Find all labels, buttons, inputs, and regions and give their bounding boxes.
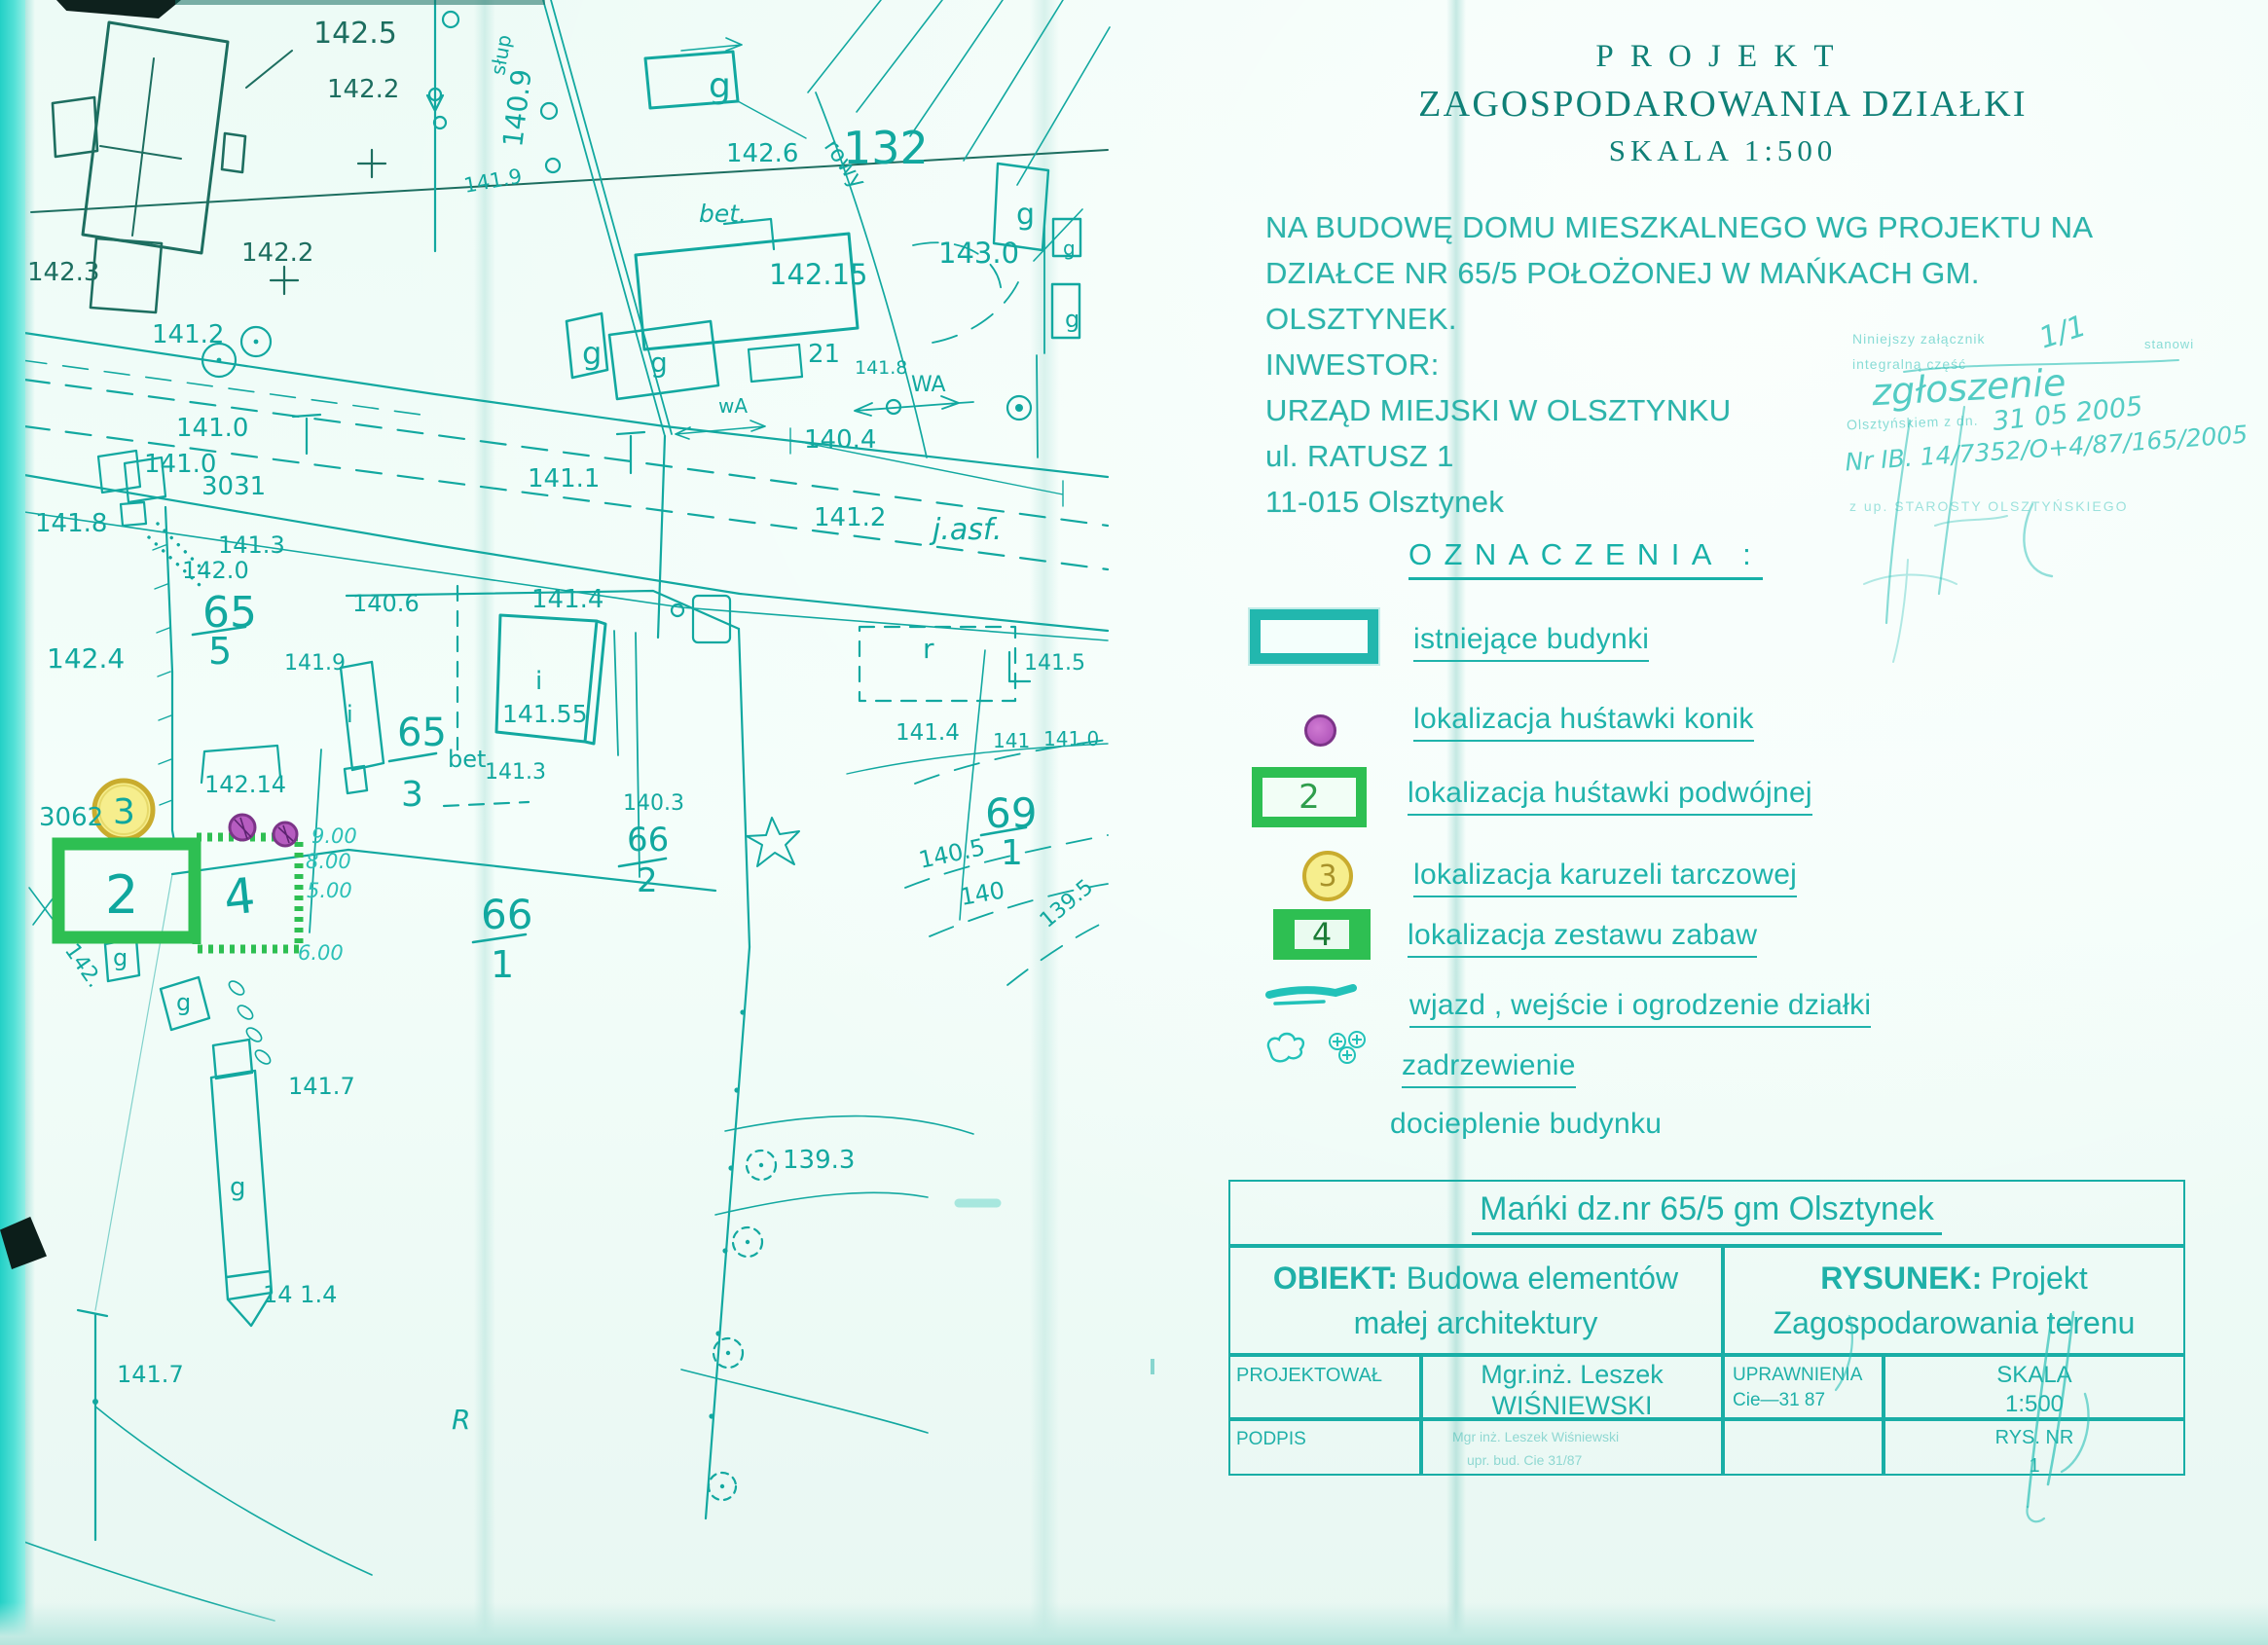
map-label: R — [452, 1404, 470, 1436]
map-label: g — [582, 335, 602, 372]
legend-number-4: 4 — [1295, 920, 1349, 949]
map-label: 6.00 — [298, 941, 344, 965]
legend-item-wjazd-ogrodzenie: wjazd , wejście i ogrodzenie działki — [1409, 989, 1871, 1028]
map-label: 66 — [627, 821, 669, 859]
map-label: 5 — [208, 630, 232, 673]
scanner-edge-strip — [0, 0, 25, 1645]
map-label: 3031 — [201, 472, 266, 501]
legend-item-hustawka-podwojna: lokalizacja huśtawki podwójnej — [1408, 777, 1812, 816]
skala-cell: SKALA 1:500 — [1884, 1355, 2185, 1419]
map-label: 142.15 — [769, 258, 867, 291]
stamp-printed-text: stanowi — [2144, 337, 2194, 351]
map-label: 141.8 — [855, 357, 907, 379]
title-block-location: Mańki dz.nr 65/5 gm Olsztynek — [1228, 1180, 2185, 1246]
map-label: 142.2 — [241, 238, 313, 268]
map-label: 140.6 — [352, 590, 420, 617]
scan-top-edge-line — [175, 0, 545, 5]
legend-symbol-trees — [1262, 1028, 1378, 1071]
legend-symbol-green-rect-4: 4 — [1273, 909, 1371, 960]
legend-item-existing-buildings: istniejące budynki — [1413, 623, 1649, 662]
star-symbol — [747, 818, 799, 866]
map-label: 141.5 — [1024, 651, 1085, 676]
title-block: Mańki dz.nr 65/5 gm Olsztynek OBIEKT: Bu… — [1228, 1180, 2185, 1476]
legend-symbol-existing-buildings — [1250, 609, 1378, 664]
map-label: 140.5 — [916, 833, 987, 874]
map-label: r — [923, 633, 934, 665]
map-label: 143.0 — [938, 237, 1019, 270]
map-label: 141.3 — [485, 760, 546, 785]
obiekt-label: OBIEKT: — [1273, 1261, 1398, 1296]
map-label: 141.2 — [814, 503, 886, 532]
map-label: 140.4 — [804, 425, 876, 455]
map-label: 141.2 — [152, 320, 224, 349]
skala-label: SKALA — [1885, 1361, 2183, 1390]
map-label: 66 — [481, 891, 532, 938]
rys-nr-cell: RYS. NR 1 — [1884, 1419, 2185, 1476]
description-line: DZIAŁCE NR 65/5 POŁOŻONEJ W MAŃKACH GM. — [1265, 250, 2141, 296]
map-label: i — [535, 667, 542, 696]
scanned-site-plan-sheet: 142.5142.2142.2142.3słup140.9141.9g142.6… — [0, 0, 2268, 1645]
map-label: g — [1016, 198, 1035, 232]
map-label: 141.9 — [284, 651, 346, 676]
projektowal-label: PROJEKTOWAŁ — [1228, 1355, 1421, 1419]
title-block-rysunek: RYSUNEK: Projekt Zagospodarowania terenu — [1723, 1246, 2185, 1355]
rys-nr-value: 1 — [1885, 1455, 2183, 1478]
map-label: i — [347, 701, 353, 728]
podpis-label: PODPIS — [1228, 1419, 1421, 1476]
map-label: 139.3 — [783, 1146, 855, 1175]
map-label: 2 — [105, 864, 138, 926]
podpis-stamp-line: upr. bud. Cie 31/87 — [1467, 1452, 1582, 1468]
stamp-printed-text: Olsztyńskiem z dn. — [1847, 413, 1979, 433]
map-label: g — [1065, 306, 1079, 333]
map-label: 69 — [985, 789, 1037, 837]
header-zagospodarowania: ZAGOSPODAROWANIA DZIAŁKI — [1402, 83, 2044, 126]
map-label: 139.5 — [1036, 875, 1098, 933]
map-label: 141.0 — [1043, 727, 1099, 750]
map-label: 2 — [637, 861, 658, 900]
map-label: 141.1 — [528, 464, 600, 493]
header-projekt: PROJEKT — [1402, 39, 2044, 75]
legend-item-hustawka-konik: lokalizacja huśtawki konik — [1413, 703, 1754, 742]
uprawnienia-label: UPRAWNIENIA — [1733, 1363, 1874, 1388]
scan-tick-mark — [1151, 1359, 1154, 1374]
map-label: g — [650, 347, 668, 379]
skala-value: 1:500 — [1885, 1390, 2183, 1419]
signature-cell — [1723, 1419, 1884, 1476]
map-label: 140 — [958, 876, 1006, 911]
map-label: g — [230, 1173, 246, 1202]
map-label: g — [709, 66, 731, 106]
map-label: 5.00 — [307, 879, 352, 902]
uprawnienia-cell: UPRAWNIENIA Cie—31 87 — [1723, 1355, 1884, 1419]
scanner-edge-shadow — [25, 0, 35, 1645]
map-label: 142.14 — [204, 771, 286, 798]
map-label: 141.4 — [896, 720, 960, 746]
legend-number-3: 3 — [1318, 859, 1336, 894]
sheet-header: PROJEKT ZAGOSPODAROWANIA DZIAŁKI SKALA 1… — [1402, 39, 2044, 168]
header-skala: SKALA 1:500 — [1402, 133, 2044, 168]
map-labels: 142.5142.2142.2142.3słup140.9141.9g142.6… — [27, 17, 1099, 1436]
map-label: WA — [911, 373, 946, 397]
map-label: 3 — [401, 775, 423, 815]
survey-cross-marks — [271, 150, 385, 294]
obiekt-value: Budowa elementów małej architektury — [1354, 1261, 1678, 1340]
map-label: 142. — [59, 939, 107, 992]
map-label: 8.00 — [306, 850, 351, 873]
map-label: 65 — [397, 711, 447, 755]
map-label: 1 — [1001, 833, 1023, 873]
legend-symbol-entrance-fence-stroke — [1265, 981, 1359, 1010]
map-label: 140.3 — [623, 791, 684, 816]
map-label: 142.3 — [27, 258, 99, 287]
map-label: bet — [448, 746, 486, 773]
map-label: 1 — [491, 943, 514, 986]
description-line: NA BUDOWĘ DOMU MIESZKALNEGO WG PROJEKTU … — [1265, 204, 2141, 250]
legend-item-zadrzewienie: zadrzewienie — [1402, 1049, 1576, 1088]
map-label: wA — [718, 394, 748, 418]
map-label: 141.3 — [218, 531, 285, 559]
map-label: 141.8 — [35, 509, 107, 538]
projektowal-value: Mgr.inż. Leszek WIŚNIEWSKI — [1421, 1355, 1723, 1419]
map-label: g — [176, 989, 191, 1016]
map-label: 141.9 — [462, 164, 524, 198]
map-label: 21 — [808, 340, 840, 369]
site-plan-map: 142.5142.2142.2142.3słup140.9141.9g142.6… — [0, 0, 1149, 1645]
legend-item-karuzela-tarczowa: lokalizacja karuzeli tarczowej — [1413, 859, 1797, 897]
podpis-stamp-line: Mgr inż. Leszek Wiśniewski — [1452, 1429, 1619, 1444]
legend-item-docieplenie: docieplenie budynku — [1390, 1108, 1662, 1145]
scan-bottom-strip — [0, 1602, 2268, 1645]
map-label: 141.7 — [117, 1361, 184, 1388]
registry-annotation-stamp: Niniejszy załącznik 1/1 stanowi integral… — [1845, 321, 2268, 642]
map-label: 141.0 — [176, 414, 248, 443]
map-label: 4 — [221, 867, 258, 927]
stamp-starosta-line: z up. STAROSTY OLSZTYŃSKIEGO — [1849, 498, 2129, 514]
podpis-stamp-cell: Mgr inż. Leszek Wiśniewski upr. bud. Cie… — [1421, 1419, 1723, 1476]
uprawnienia-value: Cie—31 87 — [1733, 1388, 1874, 1413]
map-label: 14 1.4 — [263, 1281, 337, 1308]
map-label: 142.2 — [327, 75, 399, 104]
legend-item-zestaw-zabaw: lokalizacja zestawu zabaw — [1408, 919, 1757, 958]
map-label: j.asf. — [929, 513, 1002, 547]
map-label: 141.4 — [531, 585, 604, 614]
rysunek-label: RYSUNEK: — [1820, 1261, 1982, 1296]
legend-heading: OZNACZENIA : — [1408, 537, 1763, 580]
map-label: 142.0 — [182, 557, 249, 584]
map-label: bet. — [699, 200, 747, 228]
map-label: 142.4 — [47, 642, 125, 675]
map-label: g — [113, 944, 128, 971]
legend-symbol-purple-dot — [1304, 714, 1336, 747]
map-label: g — [1063, 237, 1076, 260]
map-label: 140.9 — [496, 67, 538, 149]
map-label: 3062 — [39, 803, 103, 832]
map-label: 141 — [993, 729, 1030, 752]
map-label: 142.5 — [313, 17, 397, 51]
wa-dimension-arrow — [855, 396, 973, 416]
map-label: 141.55 — [502, 700, 587, 728]
map-label: 3 — [113, 792, 135, 832]
map-label: 142.6 — [726, 139, 798, 168]
legend-number-2: 2 — [1299, 778, 1320, 817]
rys-nr-label: RYS. NR — [1885, 1427, 2183, 1449]
legend-symbol-green-rect-2: 2 — [1252, 767, 1367, 827]
map-label: 9.00 — [311, 824, 357, 848]
stamp-printed-text: Niniejszy załącznik — [1852, 331, 1985, 347]
map-label: 141.7 — [288, 1073, 355, 1100]
title-block-obiekt: OBIEKT: Budowa elementów małej architekt… — [1228, 1246, 1723, 1355]
legend-symbol-yellow-circle-3: 3 — [1302, 851, 1353, 901]
